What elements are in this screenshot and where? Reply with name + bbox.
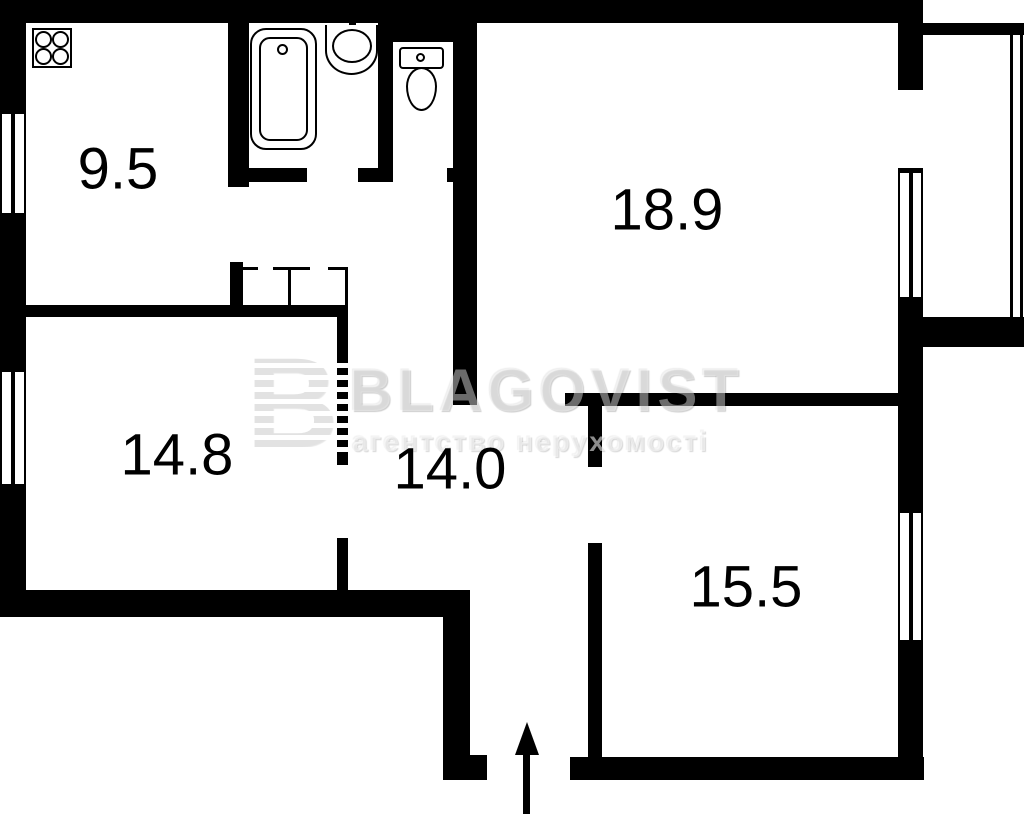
wall-right xyxy=(898,640,923,780)
closet-line xyxy=(288,267,291,305)
window xyxy=(921,173,923,297)
room-area-label-bedroom-right: 15.5 xyxy=(690,554,803,621)
closet-line xyxy=(243,267,258,270)
room-area-label-living: 18.9 xyxy=(611,177,724,244)
wall-left xyxy=(0,217,26,368)
window xyxy=(24,372,26,484)
stove-burner xyxy=(52,48,69,65)
wall-kitchen-bath xyxy=(228,23,249,187)
wall-balcony-top xyxy=(923,23,1024,35)
wall-left xyxy=(0,23,26,110)
wall-bath-bottom xyxy=(228,168,307,182)
window xyxy=(921,513,923,640)
balcony-rail-line xyxy=(1020,35,1023,317)
room-area-label-bedroom-left: 14.8 xyxy=(121,422,234,489)
wall-wc-left xyxy=(378,42,393,182)
stove-burner xyxy=(52,31,69,48)
wall-wc-top xyxy=(378,23,477,42)
entrance-arrow-icon xyxy=(515,722,539,755)
window xyxy=(909,513,913,640)
wall-vestibule-stub xyxy=(443,755,487,780)
closet-line xyxy=(273,267,310,270)
toilet-button xyxy=(416,53,425,62)
wall-bedroom-left-top xyxy=(0,305,348,317)
window xyxy=(0,372,2,484)
window xyxy=(24,114,26,213)
window xyxy=(11,372,15,484)
wall-bedroom-right-left xyxy=(588,543,602,757)
window xyxy=(11,114,15,213)
wall-closet-stub xyxy=(230,262,243,305)
sink-basin xyxy=(332,29,372,63)
wall-bottom-left xyxy=(0,590,470,617)
watermark-brand: BLAGOVIST xyxy=(349,361,744,421)
wall-bedroom-left-right xyxy=(337,538,348,590)
bathtub-drain xyxy=(277,44,288,55)
wall-balcony-bottom xyxy=(923,317,1024,347)
stove-burner xyxy=(35,48,52,65)
window-cap xyxy=(0,484,26,488)
stove-icon xyxy=(32,28,72,68)
wall-right xyxy=(898,297,923,513)
window xyxy=(898,173,900,297)
stove-burner xyxy=(35,31,52,48)
window-cap xyxy=(0,213,26,217)
window xyxy=(909,173,913,297)
watermark-logo-stripes xyxy=(240,356,352,458)
window xyxy=(898,513,900,640)
closet-line xyxy=(345,267,348,305)
wall-hall-living xyxy=(453,0,477,405)
entrance-arrow-shaft xyxy=(523,753,530,814)
balcony-rail-line xyxy=(1010,35,1013,317)
floor-plan: B BLAGOVIST агентство нерухомості 9.5 18… xyxy=(0,0,1024,814)
wall-right xyxy=(898,23,923,90)
wall-bottom-right xyxy=(570,757,924,780)
window xyxy=(0,114,2,213)
toilet-bowl xyxy=(406,67,437,111)
room-area-label-kitchen: 9.5 xyxy=(78,136,159,203)
room-area-label-hallway: 14.0 xyxy=(394,436,507,503)
